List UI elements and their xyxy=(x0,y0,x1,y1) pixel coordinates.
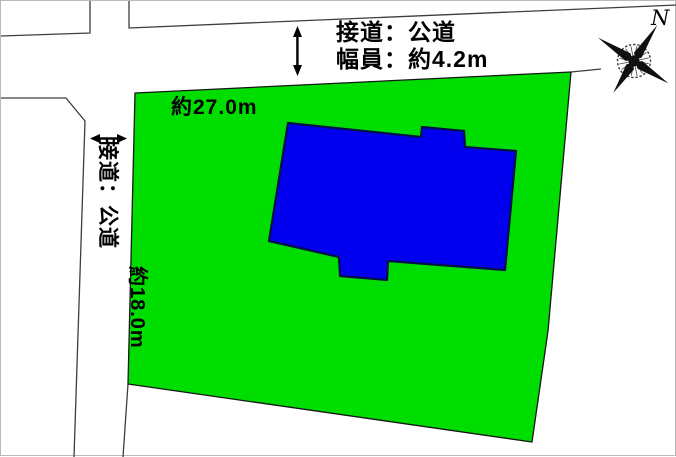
top-frontage-label: 約27.0m xyxy=(171,91,258,121)
left-frontage-label: 約18.0m xyxy=(125,266,154,349)
plot-diagram-canvas: 接道：公道 幅員：約4.2m 約27.0m 接道：公道 約18.0m N xyxy=(0,0,676,456)
left-road-access-label: 接道：公道 xyxy=(94,139,124,249)
compass-north-label: N xyxy=(651,6,669,30)
width-arrow-top-head-up xyxy=(293,26,302,37)
top-road-access-label: 接道：公道 xyxy=(336,19,488,46)
road-edge-below-parcel xyxy=(123,384,128,457)
width-arrow-top xyxy=(293,26,302,76)
width-arrow-top-head-down xyxy=(293,65,302,76)
road-edge-lower-left-block xyxy=(1,98,85,457)
width-arrow-top-shaft xyxy=(296,34,298,68)
road-edge-right-extension xyxy=(571,69,601,72)
top-road-width-label: 幅員：約4.2m xyxy=(336,46,488,73)
top-road-annotation: 接道：公道 幅員：約4.2m xyxy=(336,19,488,73)
road-edge-top-left-block xyxy=(1,1,90,36)
